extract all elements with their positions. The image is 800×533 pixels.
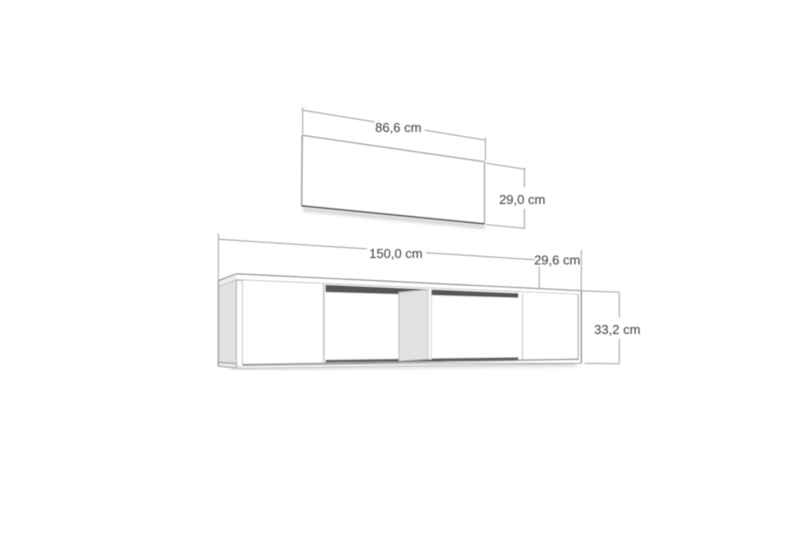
svg-text:33,2 cm: 33,2 cm <box>594 322 640 337</box>
svg-text:86,6 cm: 86,6 cm <box>375 120 421 135</box>
svg-text:29,0 cm: 29,0 cm <box>499 192 545 207</box>
svg-text:29,6 cm: 29,6 cm <box>534 253 580 268</box>
svg-text:150,0 cm: 150,0 cm <box>369 246 422 261</box>
